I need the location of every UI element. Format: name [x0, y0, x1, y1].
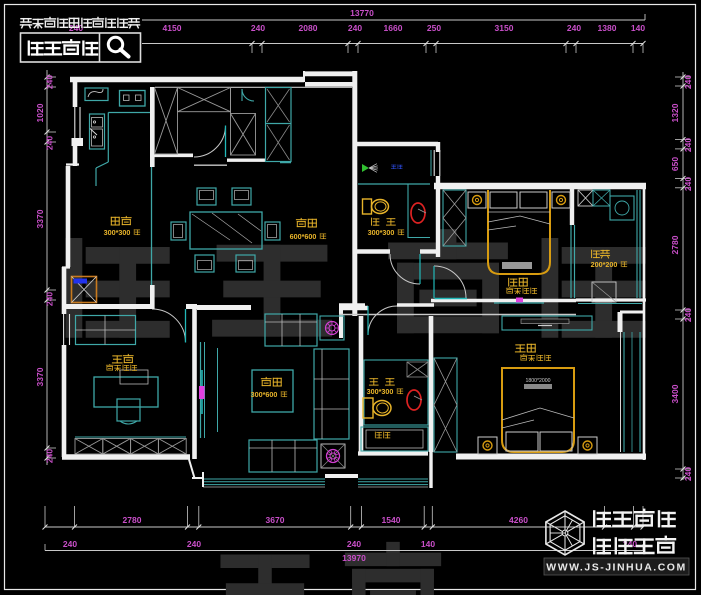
svg-text:1660: 1660: [384, 23, 403, 33]
svg-text:13970: 13970: [342, 553, 366, 563]
svg-text:240: 240: [45, 292, 55, 306]
svg-text:1800*2000: 1800*2000: [525, 378, 550, 384]
svg-text:600*600: 600*600: [290, 232, 317, 241]
svg-text:300*300: 300*300: [367, 387, 394, 396]
svg-text:250: 250: [427, 23, 441, 33]
svg-text:240: 240: [45, 136, 55, 150]
svg-text:140: 140: [421, 539, 435, 549]
svg-text:240: 240: [683, 177, 693, 191]
svg-text:1320: 1320: [670, 103, 680, 122]
svg-text:2780: 2780: [670, 235, 680, 254]
svg-text:240: 240: [45, 75, 55, 89]
svg-text:240: 240: [683, 467, 693, 481]
svg-text:240: 240: [348, 23, 362, 33]
svg-text:140: 140: [631, 23, 645, 33]
svg-text:4260: 4260: [509, 515, 528, 525]
svg-text:200*200: 200*200: [591, 260, 618, 269]
svg-text:2780: 2780: [123, 515, 142, 525]
svg-text:300*300: 300*300: [104, 228, 131, 237]
svg-text:3670: 3670: [266, 515, 285, 525]
svg-text:3370: 3370: [35, 209, 45, 228]
svg-text:650: 650: [670, 157, 680, 171]
svg-text:240: 240: [683, 138, 693, 152]
svg-text:4150: 4150: [163, 23, 182, 33]
svg-text:240: 240: [187, 539, 201, 549]
svg-text:3370: 3370: [35, 367, 45, 386]
svg-text:13770: 13770: [350, 8, 374, 18]
svg-text:240: 240: [45, 449, 55, 463]
svg-text:1380: 1380: [598, 23, 617, 33]
svg-text:240: 240: [683, 75, 693, 89]
svg-text:300*600: 300*600: [251, 390, 278, 399]
svg-text:1540: 1540: [382, 515, 401, 525]
svg-text:240: 240: [683, 308, 693, 322]
svg-text:240: 240: [567, 23, 581, 33]
svg-text:WWW.JS-JINHUA.COM: WWW.JS-JINHUA.COM: [546, 562, 686, 574]
svg-text:2080: 2080: [299, 23, 318, 33]
svg-text:3150: 3150: [495, 23, 514, 33]
svg-text:300*300: 300*300: [368, 228, 395, 237]
svg-text:3400: 3400: [670, 384, 680, 403]
svg-text:1020: 1020: [35, 103, 45, 122]
svg-text:240: 240: [251, 23, 265, 33]
svg-text:240: 240: [347, 539, 361, 549]
svg-text:240: 240: [63, 539, 77, 549]
